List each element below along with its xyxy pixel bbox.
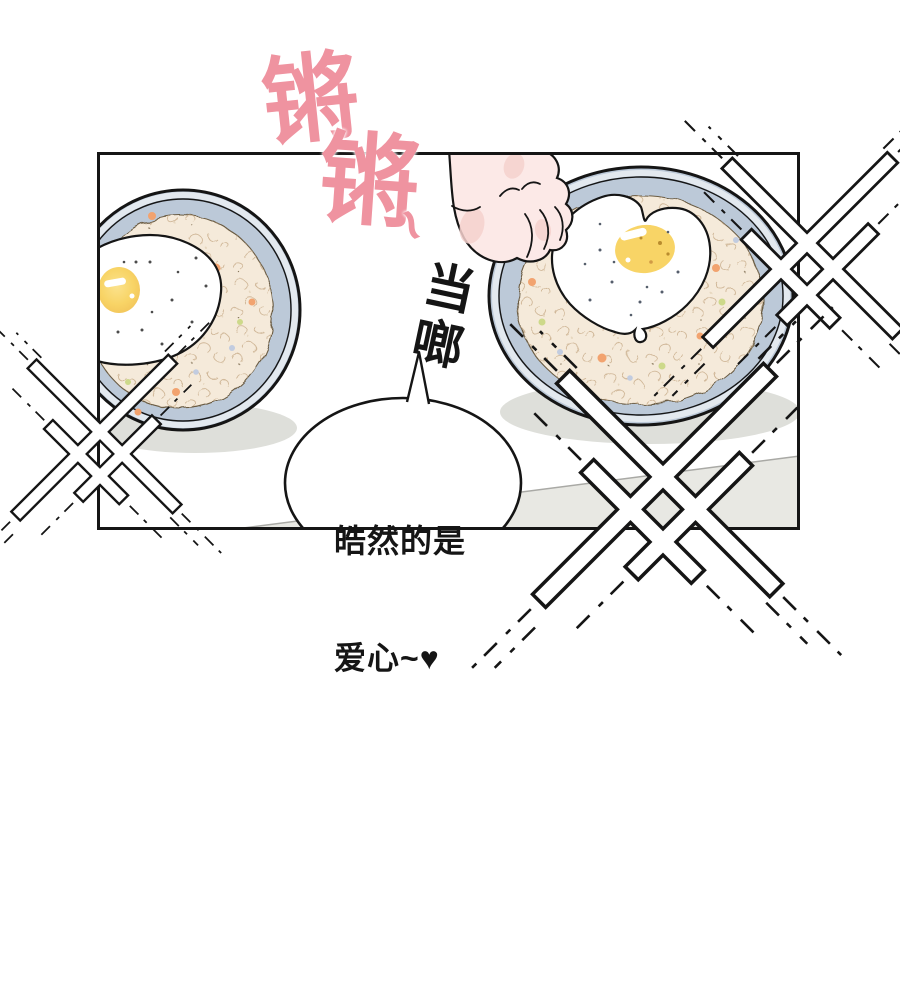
- egg-yolk: [98, 267, 140, 313]
- left-plate: [66, 190, 300, 430]
- speech-bubble-text: 皓然的是 爱心~♥: [334, 444, 466, 717]
- speech-line-1: 皓然的是: [334, 522, 466, 561]
- comic-page: 锵 锵 ~ 当啷 皓然的是 爱心~♥: [0, 0, 900, 995]
- speech-line-2: 爱心~♥: [334, 639, 466, 678]
